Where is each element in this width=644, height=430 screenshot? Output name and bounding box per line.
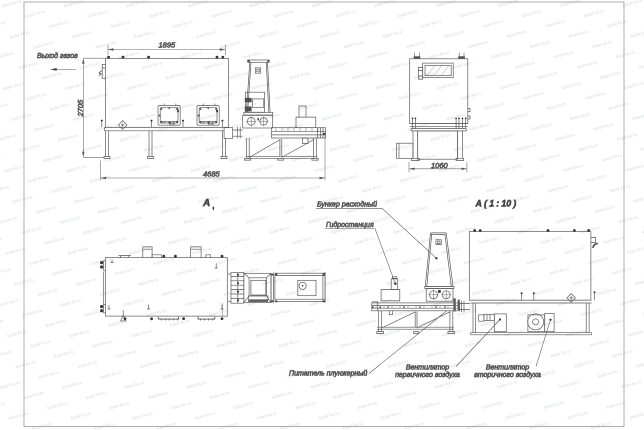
svg-text:Гидростанция: Гидростанция xyxy=(326,221,374,229)
svg-text:Вентилятор: Вентилятор xyxy=(406,365,449,372)
svg-text:Бункер расходный: Бункер расходный xyxy=(317,201,377,209)
svg-text:1895: 1895 xyxy=(159,41,177,50)
svg-text:А: А xyxy=(202,198,210,209)
svg-text:Вентилятор: Вентилятор xyxy=(486,365,529,372)
svg-text:1060: 1060 xyxy=(431,161,449,170)
svg-text:вторичного воздуха: вторичного воздуха xyxy=(474,371,541,379)
svg-text:4685: 4685 xyxy=(203,170,221,179)
svg-text:А ( 1 : 10 ): А ( 1 : 10 ) xyxy=(475,198,517,208)
svg-text:первичного воздуха: первичного воздуха xyxy=(395,371,460,379)
svg-text:2705: 2705 xyxy=(76,99,85,118)
svg-text:Выход газов: Выход газов xyxy=(37,52,78,60)
svg-text:Питатель плунжерный: Питатель плунжерный xyxy=(289,370,367,378)
